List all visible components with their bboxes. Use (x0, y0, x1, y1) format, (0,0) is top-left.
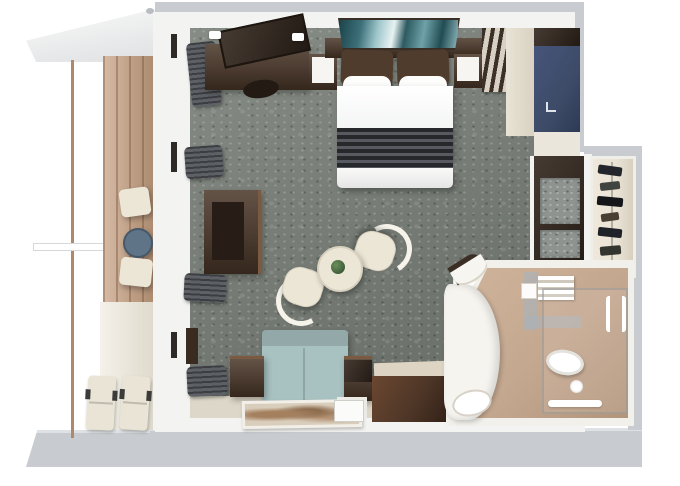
towel-bar (548, 400, 602, 407)
floorplan-render (0, 0, 680, 486)
towel-bar (606, 296, 626, 332)
toilet-flush (570, 380, 583, 393)
bath-accessory (521, 283, 537, 299)
room-bathroom (0, 0, 680, 486)
